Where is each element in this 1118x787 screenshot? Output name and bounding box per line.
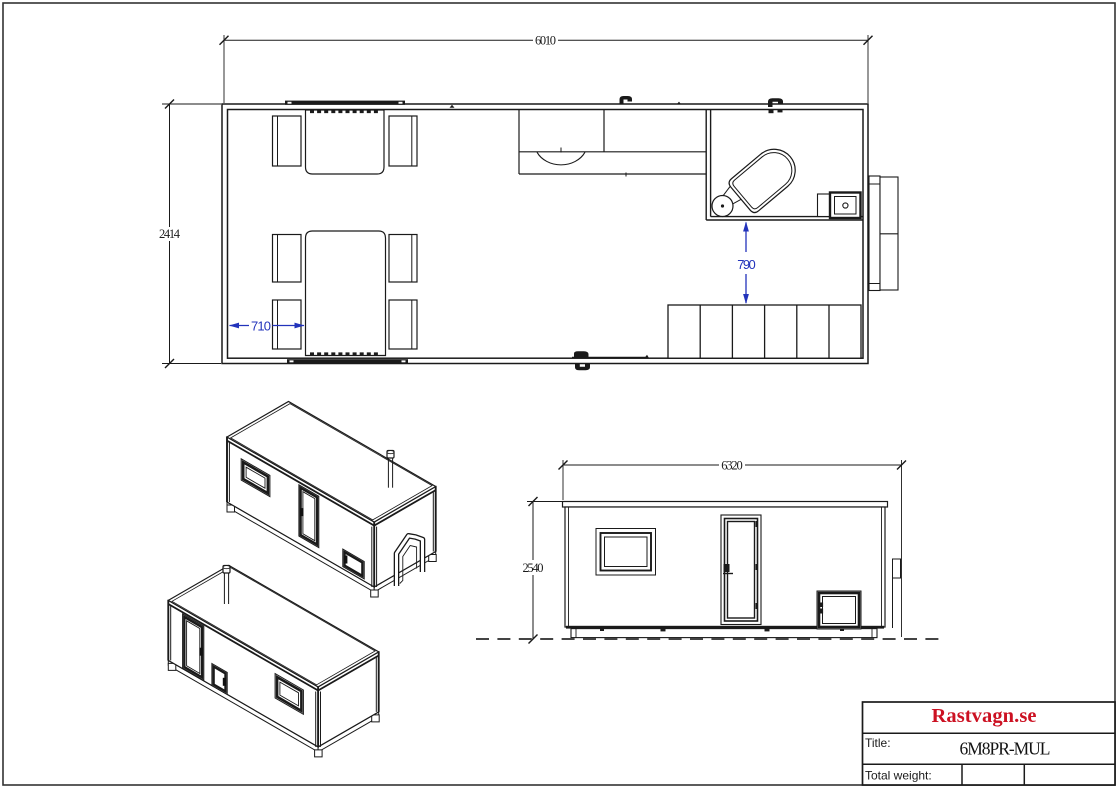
svg-text:Title:: Title: bbox=[865, 736, 891, 750]
svg-text:6320: 6320 bbox=[721, 459, 743, 473]
svg-text:6010: 6010 bbox=[535, 33, 556, 47]
svg-text:2414: 2414 bbox=[159, 227, 181, 241]
svg-text:6M8PR-MUL: 6M8PR-MUL bbox=[960, 739, 1051, 759]
svg-text:710: 710 bbox=[251, 319, 271, 334]
svg-text:2540: 2540 bbox=[523, 561, 544, 575]
svg-text:Rastvagn.se: Rastvagn.se bbox=[932, 705, 1037, 727]
svg-text:790: 790 bbox=[737, 257, 756, 272]
svg-text:Total weight:: Total weight: bbox=[865, 769, 932, 783]
